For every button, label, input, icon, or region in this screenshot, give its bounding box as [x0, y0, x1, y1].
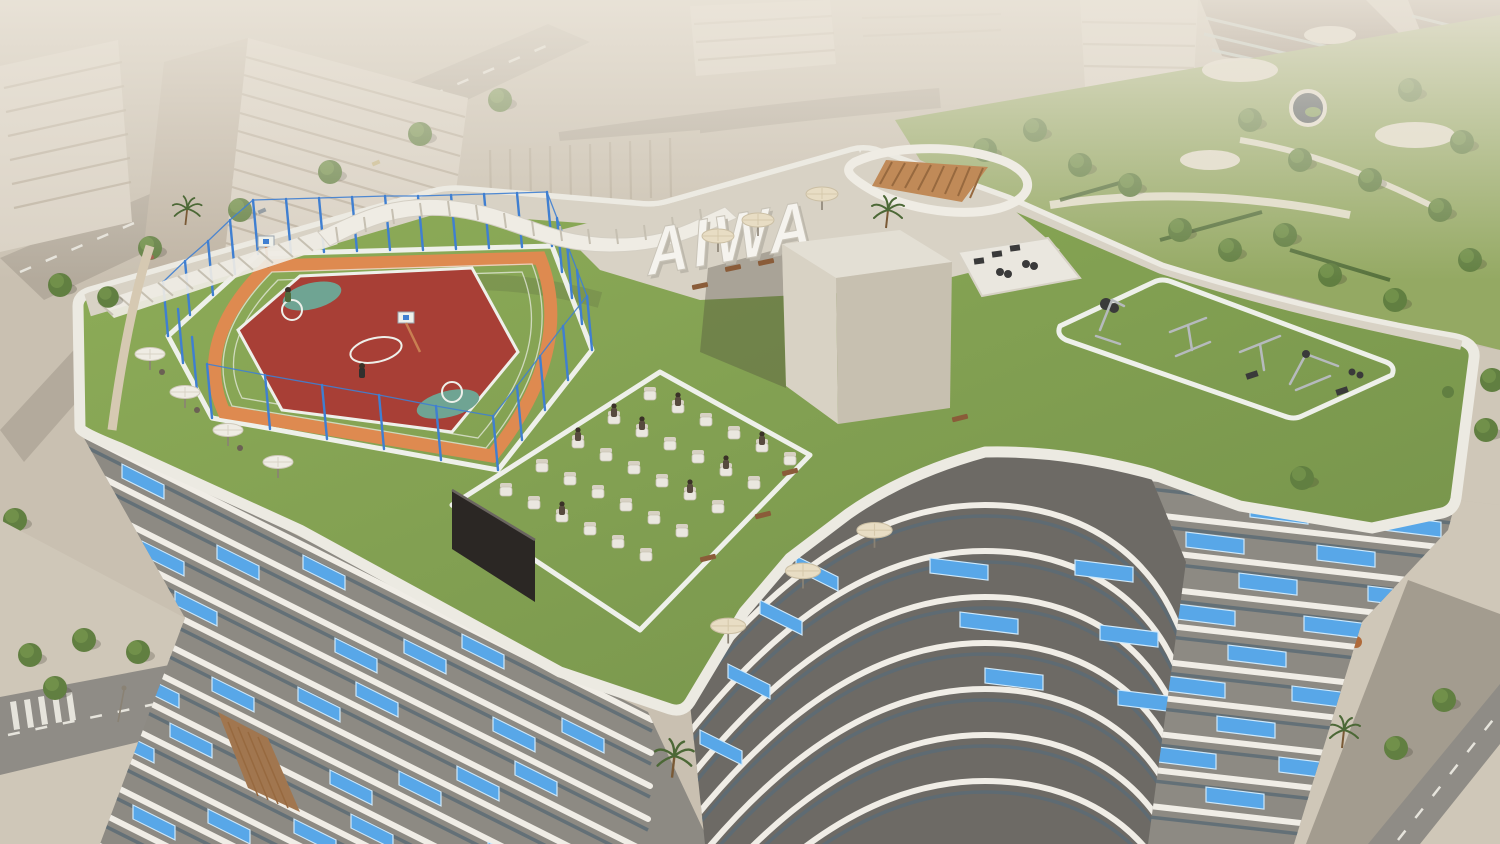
rooftop-pavilion — [782, 230, 952, 424]
render-canvas: AIWA AIWA — [0, 0, 1500, 844]
rooftop-render: AIWA AIWA — [0, 0, 1500, 844]
